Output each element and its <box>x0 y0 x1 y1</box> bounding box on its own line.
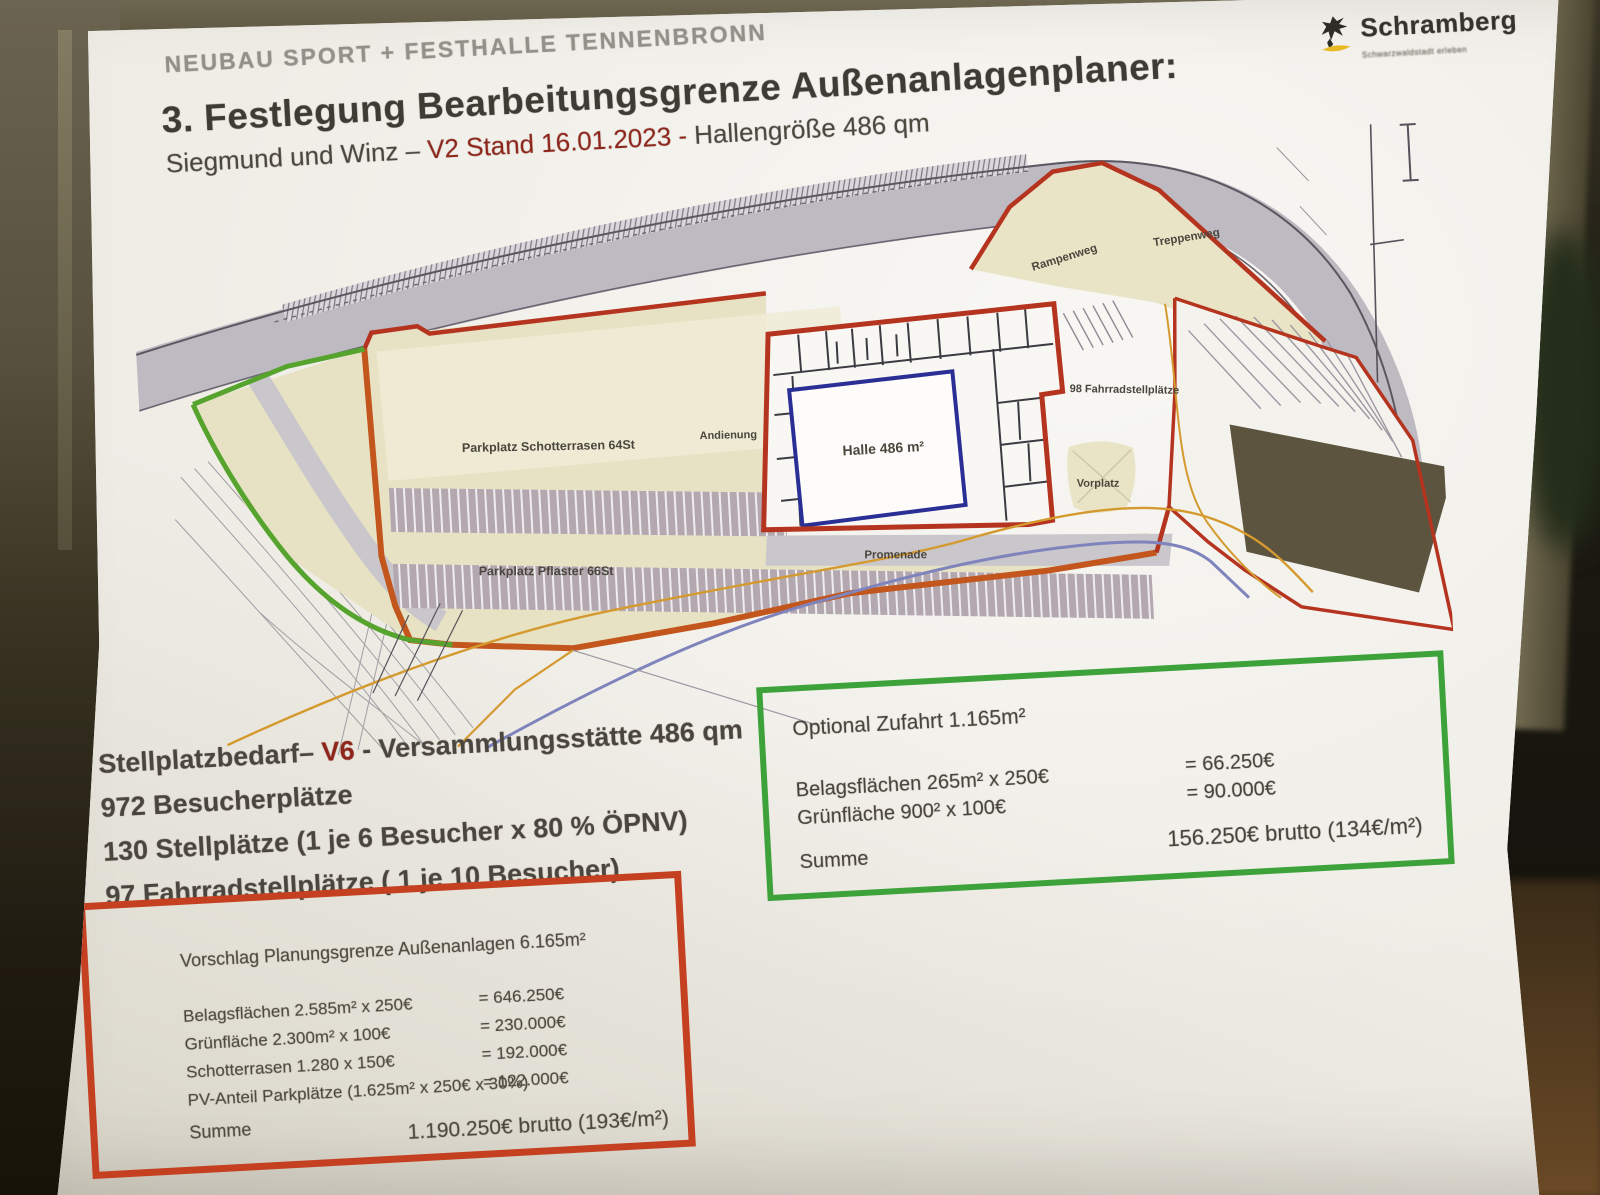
red-box-row-label: Schotterrasen 1.280 x 150€ <box>186 1052 396 1083</box>
label-promenade: Promenade <box>864 549 927 561</box>
planungsgrenze-cost-box: Vorschlag Planungsgrenze Außenanlagen 6.… <box>78 871 696 1179</box>
green-box-row-label: Belagsflächen 265m² x 250€ <box>795 766 1049 803</box>
red-box-sum-label: Summe <box>189 1119 252 1143</box>
project-name: NEUBAU SPORT + FESTHALLE TENNENBRONN <box>164 19 768 79</box>
red-box-row-value: = 230.000€ <box>480 1012 567 1037</box>
red-box-row-value: = 646.250€ <box>478 984 565 1009</box>
presentation-slide: NEUBAU SPORT + FESTHALLE TENNENBRONN 3. … <box>0 0 1600 1195</box>
stellplatz-title-version: V6 <box>321 735 356 767</box>
logo-wordmark: Schramberg <box>1360 4 1518 43</box>
red-box-title: Vorschlag Planungsgrenze Außenanlagen 6.… <box>180 929 587 972</box>
red-box-row-label: Belagsflächen 2.585m² x 250€ <box>183 995 413 1027</box>
green-box-sum-value: 156.250€ brutto (134€/m²) <box>1167 813 1424 853</box>
red-box-row-label: Grünfläche 2.300m² x 100€ <box>184 1024 391 1055</box>
photo-of-projected-slide: NEUBAU SPORT + FESTHALLE TENNENBRONN 3. … <box>0 0 1600 1195</box>
red-box-row-value: = 192.000€ <box>481 1040 568 1065</box>
slide-content: NEUBAU SPORT + FESTHALLE TENNENBRONN 3. … <box>100 0 1600 1195</box>
screen-frame-edge <box>58 30 72 550</box>
green-box-row-value: = 66.250€ <box>1184 750 1275 778</box>
green-box-title: Optional Zufahrt 1.165m² <box>792 705 1026 742</box>
label-vorplatz: Vorplatz <box>1077 478 1120 490</box>
label-fahrradstellplaetze: 98 Fahrradstellplätze <box>1070 383 1180 397</box>
green-box-row-value: = 90.000€ <box>1186 777 1277 805</box>
green-box-sum-label: Summe <box>799 848 869 875</box>
red-box-row-value: = 122.000€ <box>483 1068 570 1093</box>
griffin-crest-icon <box>1318 13 1354 55</box>
red-box-sum-value: 1.190.250€ brutto (193€/m²) <box>407 1107 669 1145</box>
optional-zufahrt-cost-box: Optional Zufahrt 1.165m² Belagsflächen 2… <box>756 650 1455 901</box>
bike-parking-hatch <box>1063 300 1133 352</box>
stellplatz-title-prefix: Stellplatzbedarf– <box>98 737 323 779</box>
green-box-row-label: Grünfläche 900² x 100€ <box>797 796 1007 830</box>
label-andienung: Andienung <box>699 429 757 442</box>
schramberg-logo: Schramberg Schwarzwaldstadt erleben <box>1318 3 1550 62</box>
label-parkplatz-pflaster: Parkplatz Pflaster 66St <box>479 564 615 578</box>
hall-building-floorplan: Halle 486 m² <box>752 304 1069 539</box>
